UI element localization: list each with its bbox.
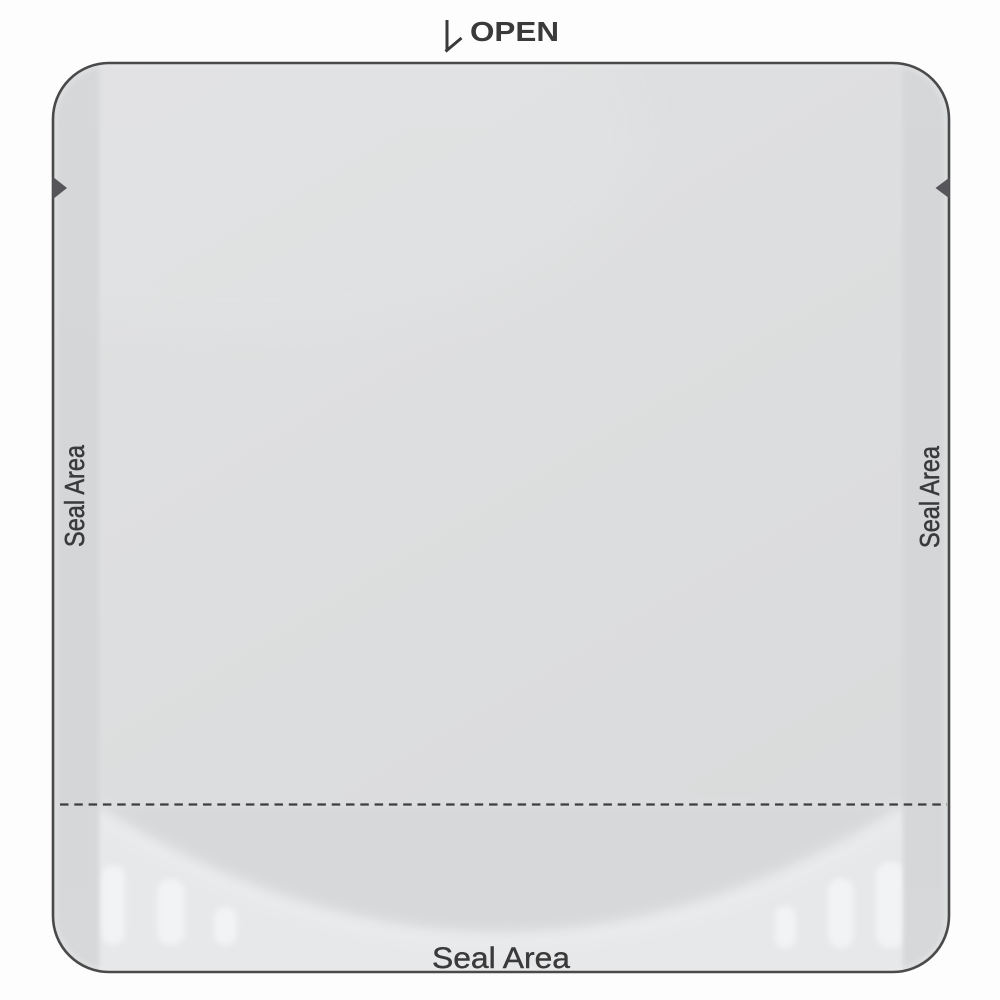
- svg-text:Seal Area: Seal Area: [59, 445, 90, 547]
- svg-text:OPEN: OPEN: [470, 16, 559, 47]
- svg-text:Seal Area: Seal Area: [432, 942, 571, 975]
- svg-text:Seal Area: Seal Area: [914, 446, 945, 548]
